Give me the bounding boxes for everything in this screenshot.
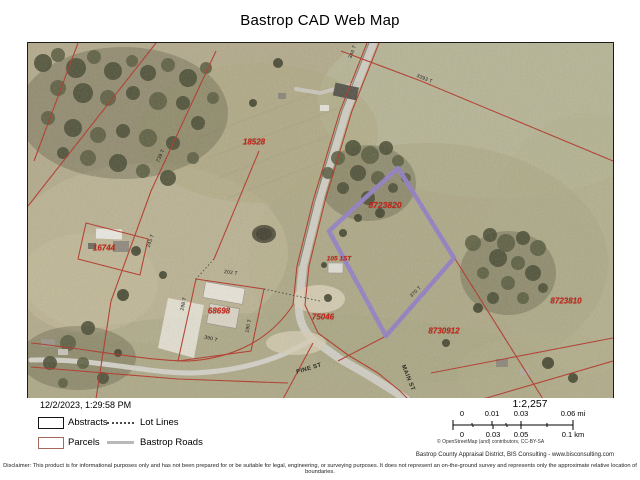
parcel-label-8730912: 8730912 [428,327,459,336]
scale-mi-tick-label: 0.01 [478,409,506,418]
bastrop-roads-swatch [107,441,134,444]
parcel-label-68698: 68698 [208,307,230,316]
scale-km-tick-label: 0.05 [507,430,535,439]
parcel-label-75046: 75046 [312,313,334,322]
legend-item-lot-lines: Lot Lines [140,417,179,428]
lot-lines-swatch [107,422,134,424]
legend-item-bastrop-roads: Bastrop Roads [140,437,203,448]
scale-mi-tick-label: 0 [455,409,469,418]
parcel-label-18528: 18528 [243,138,265,147]
parcel-label-105-1st: 105 1ST [327,256,352,263]
parcel-label-8723810: 8723810 [550,297,581,306]
legend-item-abstracts: Abstracts [68,417,108,428]
scale-mi-tick-label: 0.06 mi [550,409,596,418]
scale-km-tick-label: 0.03 [479,430,507,439]
disclaimer-text: Disclaimer: This product is for informat… [0,463,640,475]
parcel-label-8723820-selected: 8723820 [368,200,401,210]
map-viewport[interactable]: 18528 16744 68698 75046 8730912 8723810 … [27,42,614,400]
export-timestamp: 12/2/2023, 1:29:58 PM [40,400,131,410]
aerial-imagery [28,43,613,399]
legend-item-parcels: Parcels [68,437,100,448]
osm-attribution: © OpenStreetMap (and) contributors, CC-B… [437,439,544,445]
abstracts-swatch [38,417,64,429]
scale-km-tick-label: 0.1 km [551,430,595,439]
scale-km-tick-label: 0 [455,430,469,439]
parcels-swatch [38,437,64,449]
district-credit: Bastrop County Appraisal District, BIS C… [416,452,614,458]
image-grain [28,43,613,399]
parcel-label-16744: 16744 [93,244,115,253]
footer-panel: 12/2/2023, 1:29:58 PM Abstracts Lot Line… [0,398,640,480]
page-title: Bastrop CAD Web Map [0,12,640,29]
scale-mi-tick-label: 0.03 [507,409,535,418]
